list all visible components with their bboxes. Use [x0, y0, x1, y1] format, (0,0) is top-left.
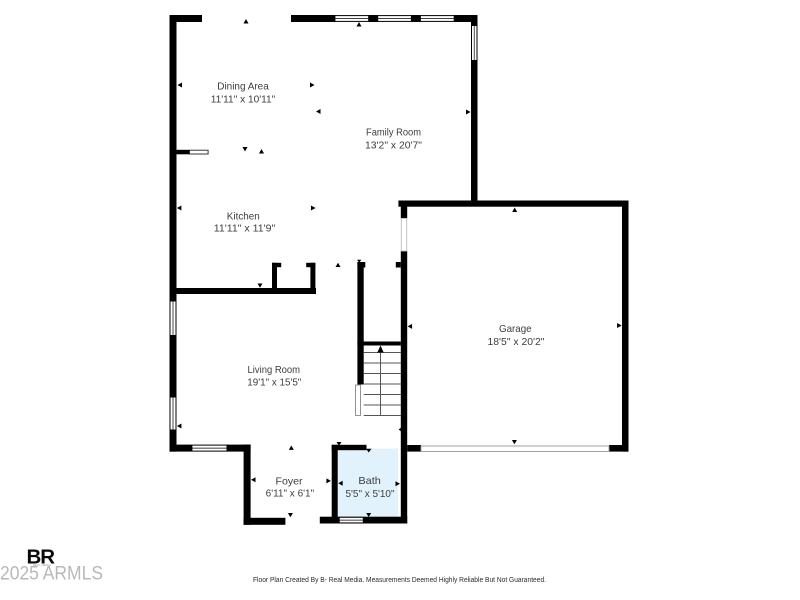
svg-text:11'11" x 11'9": 11'11" x 11'9": [214, 223, 276, 234]
svg-text:Foyer: Foyer: [276, 476, 304, 488]
svg-text:18'5" x 20'2": 18'5" x 20'2": [488, 337, 545, 348]
svg-text:Dining Area: Dining Area: [217, 80, 269, 92]
svg-text:13'2" x 20'7": 13'2" x 20'7": [365, 141, 422, 152]
svg-text:Family Room: Family Room: [366, 126, 421, 138]
svg-text:Garage: Garage: [499, 323, 532, 335]
svg-text:Floor Plan Created By B- Real: Floor Plan Created By B- Real Media. Mea…: [253, 577, 546, 584]
svg-text:5'5" x 5'10": 5'5" x 5'10": [346, 489, 395, 500]
svg-text:2025 ARMLS: 2025 ARMLS: [0, 564, 103, 585]
svg-text:Kitchen: Kitchen: [227, 211, 260, 223]
svg-text:19'1" x 15'5": 19'1" x 15'5": [247, 378, 301, 389]
svg-text:6'11" x 6'1": 6'11" x 6'1": [266, 489, 315, 500]
svg-text:Bath: Bath: [358, 475, 381, 487]
svg-text:11'11" x 10'11": 11'11" x 10'11": [211, 94, 276, 105]
svg-text:Living Room: Living Room: [248, 364, 301, 376]
